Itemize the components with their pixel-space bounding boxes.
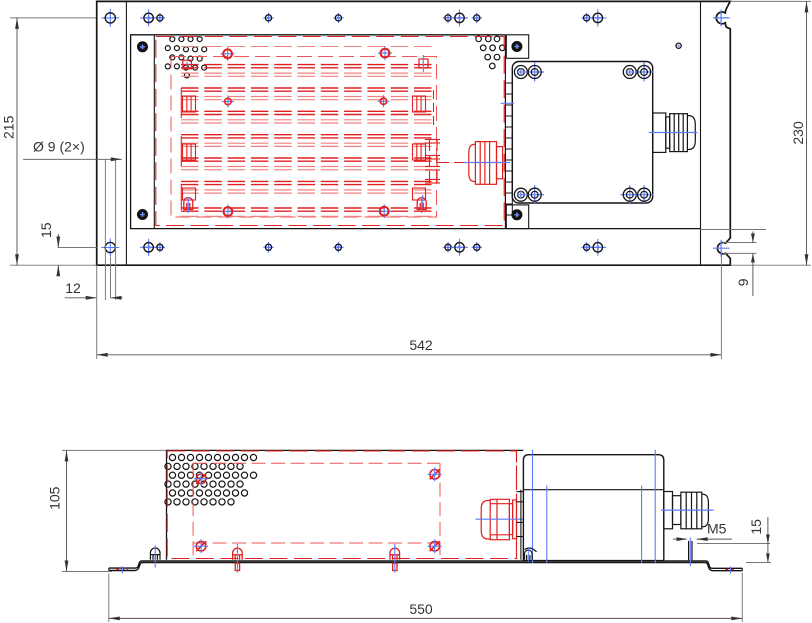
svg-text:15: 15 xyxy=(748,519,764,535)
svg-text:550: 550 xyxy=(409,601,433,617)
svg-text:105: 105 xyxy=(47,486,63,510)
svg-text:12: 12 xyxy=(65,280,81,296)
svg-text:542: 542 xyxy=(409,337,433,353)
svg-text:15: 15 xyxy=(38,222,54,238)
svg-text:215: 215 xyxy=(1,115,17,139)
svg-text:Ø 9 (2×): Ø 9 (2×) xyxy=(33,139,85,155)
svg-text:M5: M5 xyxy=(707,521,727,537)
svg-text:230: 230 xyxy=(790,121,806,145)
svg-text:9: 9 xyxy=(735,278,751,286)
